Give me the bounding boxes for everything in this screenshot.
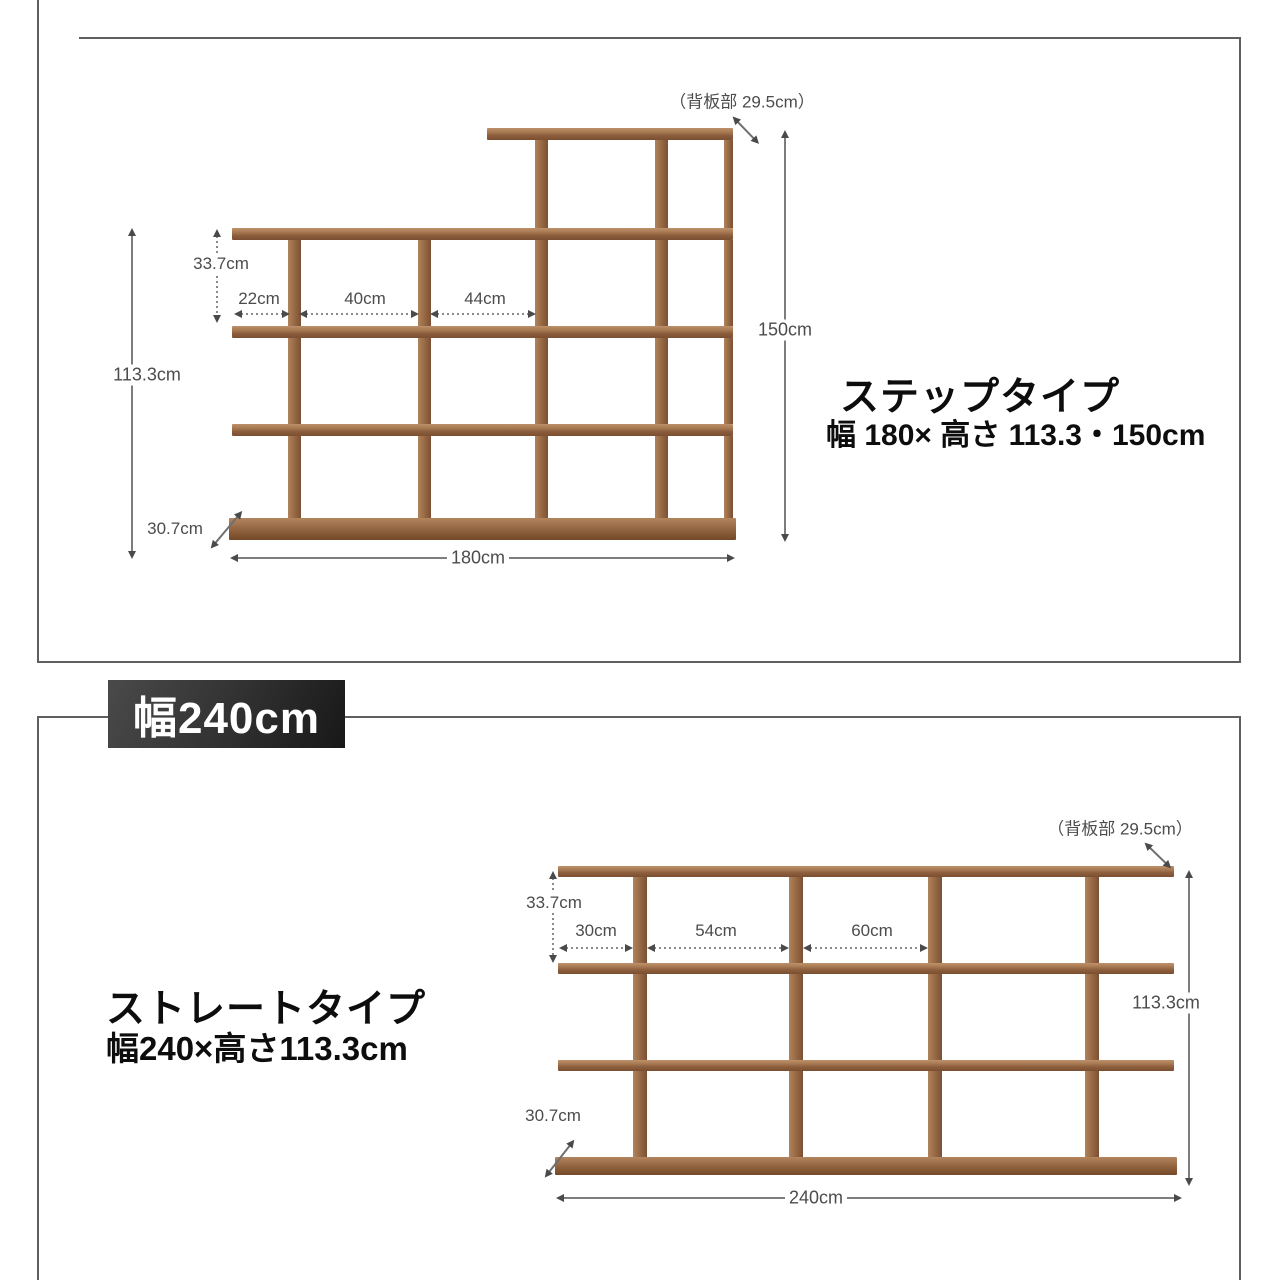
dim-label-cubby-3: 44cm	[464, 289, 506, 309]
back-panel-note: （背板部 29.5cm）	[669, 88, 814, 113]
shelf-divider	[633, 974, 647, 1060]
shelf-board	[232, 326, 733, 338]
dim-label-height-113: 113.3cm	[109, 365, 185, 386]
shelf-divider	[655, 240, 668, 326]
shelf-board	[232, 228, 733, 240]
back-panel-arrow	[1145, 843, 1170, 867]
dim-label-cubby-2: 54cm	[695, 921, 737, 941]
shelf-base-board	[555, 1157, 1177, 1175]
dim-label-cubby-2: 40cm	[344, 289, 386, 309]
step-shelf-illustration	[232, 128, 733, 540]
shelf-divider	[724, 436, 733, 518]
shelf-divider	[724, 140, 733, 228]
shelf-divider	[1085, 877, 1099, 963]
shelf-divider	[928, 1071, 942, 1157]
dim-line-cubby-3	[805, 947, 926, 949]
shelf-divider	[288, 436, 301, 518]
shelf-divider	[535, 436, 548, 518]
straight-type-subtitle: 幅240×高さ113.3cm	[106, 1022, 408, 1070]
shelf-divider	[789, 1071, 803, 1157]
dim-line-cubby-1	[561, 947, 631, 949]
shelf-divider	[535, 338, 548, 424]
dim-label-cubby-3: 60cm	[851, 921, 893, 941]
shelf-divider	[789, 974, 803, 1060]
straight-panel-border-right	[1239, 716, 1241, 1280]
dim-line-inner-height	[216, 231, 218, 321]
dim-line-height-113	[131, 230, 133, 557]
dim-label-depth: 30.7cm	[147, 519, 203, 539]
shelf-divider	[724, 240, 733, 326]
dim-line-cubby-2	[301, 313, 417, 315]
shelf-board	[232, 424, 733, 436]
shelf-board	[487, 128, 733, 140]
dim-label-width-180: 180cm	[447, 548, 509, 569]
shelf-divider	[418, 436, 431, 518]
dim-line-cubby-3	[432, 313, 534, 315]
shelf-board	[558, 963, 1174, 974]
dim-line-cubby-1	[236, 313, 288, 315]
shelf-divider	[1085, 1071, 1099, 1157]
shelf-board	[558, 866, 1174, 877]
straight-panel-border-left	[37, 716, 39, 1280]
shelf-divider	[724, 338, 733, 424]
dim-line-inner-height	[552, 873, 554, 961]
dim-line-width-240	[558, 1197, 1180, 1199]
shelf-divider	[633, 1071, 647, 1157]
step-panel-border-right	[1239, 37, 1241, 663]
shelf-base-board	[229, 518, 736, 540]
dim-line-cubby-2	[649, 947, 787, 949]
dim-label-height-150: 150cm	[754, 320, 816, 341]
shelf-divider	[655, 436, 668, 518]
shelf-divider	[535, 140, 548, 228]
back-panel-arrow	[733, 117, 758, 143]
shelf-divider	[633, 877, 647, 963]
dim-label-width-240: 240cm	[785, 1188, 847, 1209]
step-type-subtitle: 幅 180× 高さ 113.3・150cm	[826, 410, 1205, 454]
shelf-divider	[655, 140, 668, 228]
dim-label-inner-height: 33.7cm	[522, 893, 586, 913]
shelf-board	[558, 1060, 1174, 1071]
straight-shelf-illustration	[558, 866, 1174, 1175]
back-panel-note: （背板部 29.5cm）	[1047, 815, 1192, 840]
shelf-divider	[1085, 974, 1099, 1060]
step-panel-border-bottom	[37, 661, 1241, 663]
dim-label-cubby-1: 22cm	[238, 289, 280, 309]
shelf-divider	[789, 877, 803, 963]
shelf-divider	[288, 338, 301, 424]
dim-label-depth: 30.7cm	[525, 1106, 581, 1126]
dim-line-height-113	[1188, 872, 1190, 1184]
step-panel-border-left	[37, 0, 39, 663]
shelf-divider	[535, 240, 548, 326]
shelf-divider	[928, 974, 942, 1060]
dim-label-height-113: 113.3cm	[1128, 993, 1204, 1014]
shelf-divider	[418, 338, 431, 424]
shelf-divider	[655, 338, 668, 424]
dim-label-cubby-1: 30cm	[575, 921, 617, 941]
dim-label-inner-height: 33.7cm	[189, 254, 253, 274]
product-spec-image: （背板部 29.5cm） 150cm 113.3cm 33.7cm 22cm 4…	[0, 0, 1280, 1280]
shelf-divider	[928, 877, 942, 963]
step-panel-border-top	[79, 37, 1241, 39]
width-240-banner: 幅240cm	[108, 680, 345, 748]
